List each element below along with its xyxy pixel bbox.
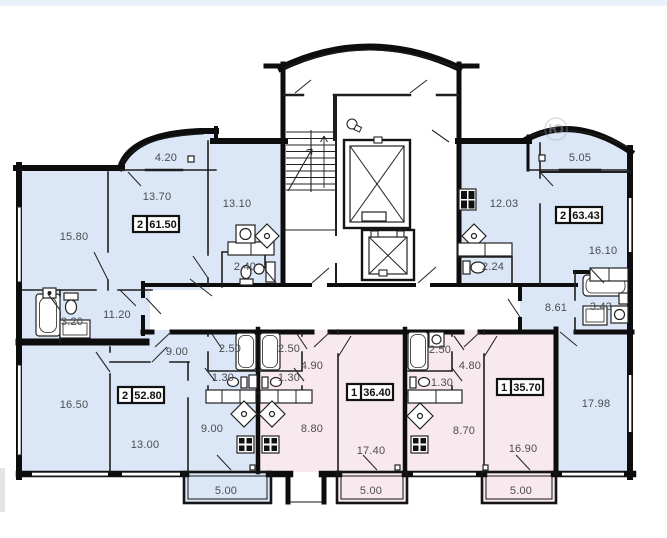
area-label-top-left-balcony: 4.20 [155,152,177,164]
vent-mark [188,156,194,162]
vent-mark [539,155,545,161]
area-label-bottom-middle-balcony: 5.00 [360,485,382,497]
total-area: 61.50 [149,219,177,231]
watermark: Ю [545,118,567,140]
apartment-box-bottom-right: 1 35.70 [497,379,543,395]
area-label-bottom-left-living: 16.50 [60,399,89,411]
area-label-bottom-middle-living: 17.40 [357,445,386,457]
stove-icon [262,436,279,453]
stove-icon [411,436,428,453]
total-area: 63.43 [572,210,600,222]
watermark-letter: Ю [548,121,563,138]
stair-up-arrow [321,136,328,188]
rooms-count: 2 [560,210,566,222]
area-label-top-right-kitchen: 12.03 [490,198,519,210]
area-label-top-left-hallway: 11.20 [103,309,131,321]
area-label-top-right-wc: 2.24 [482,261,504,273]
area-label-top-left-kitchen: 13.10 [223,198,252,210]
area-label-bottom-middle-hallway: 4.90 [301,360,323,372]
area-label-top-left-bathroom: 3.20 [61,316,83,328]
toilet-icon [410,377,416,388]
floor-plan: 4.20 13.70 13.10 15.80 2.40 3.20 11.20 5… [0,0,667,538]
fire-hose-icon [347,119,362,132]
rooms-count: 1 [351,387,357,399]
area-label-top-right-hallway: 8.61 [545,302,567,314]
stove-icon [236,225,255,243]
area-label-top-right-balcony: 5.05 [569,152,591,164]
vent-mark [395,465,400,470]
area-label-top-left-bedroom: 13.70 [143,191,172,203]
apartment-top-right-bedroom-fill [540,170,630,283]
area-label-top-right-living: 17.98 [582,398,611,410]
area-label-bottom-left-balcony: 5.00 [215,485,237,497]
area-label-bottom-left-wc: 1.30 [212,372,234,384]
area-label-top-right-bathroom: 3.43 [590,301,612,313]
area-label-top-left-living: 15.80 [60,231,89,243]
elevators [344,119,414,280]
stove-icon [237,436,254,453]
area-label-bottom-left-kitchen: 9.00 [201,423,223,435]
apartment-box-top-left: 2 61.50 [133,216,179,232]
staircase [286,130,336,192]
area-label-top-right-bedroom: 16.10 [589,245,618,257]
rooms-count: 2 [137,219,143,231]
area-label-bottom-left-bedroom: 13.00 [131,439,160,451]
area-label-bottom-right-bathroom: 2.50 [429,344,451,356]
rooms-count: 2 [122,390,128,402]
vent-mark [250,465,255,470]
total-area: 52.80 [134,390,162,402]
toilet-icon [64,293,78,300]
rooms-count: 1 [501,382,507,394]
toilet-icon [463,261,470,274]
area-label-bottom-middle-kitchen: 8.80 [301,423,323,435]
area-label-top-left-wc: 2.40 [234,261,256,273]
apartment-box-top-right: 2 63.43 [556,207,602,223]
area-label-bottom-right-wc: 1.30 [431,377,453,389]
area-label-bottom-right-hallway: 4.80 [459,360,481,372]
apartment-box-bottom-middle: 1 36.40 [347,384,393,400]
toilet-icon [262,377,268,388]
total-area: 35.70 [513,382,541,394]
area-label-bottom-right-living: 16.90 [509,443,538,455]
total-area: 36.40 [363,387,391,399]
area-label-bottom-middle-wc: 1.30 [278,372,300,384]
stair-direction-arrow [288,149,312,191]
area-label-bottom-left-hallway: 9.00 [166,346,188,358]
kitchen-counter [260,390,312,403]
washing-machine-icon [611,306,628,323]
page-edge-artifact [0,468,5,512]
floor-plan-page: 4.20 13.70 13.10 15.80 2.40 3.20 11.20 5… [0,0,667,538]
area-label-bottom-right-balcony: 5.00 [510,485,532,497]
kitchen-counter [408,390,462,403]
sink-icon [619,293,628,304]
area-label-bottom-left-bathroom: 2.50 [219,343,241,355]
area-label-bottom-middle-bathroom: 2.50 [278,343,300,355]
apartment-box-bottom-left: 2 52.80 [118,387,164,403]
area-label-bottom-right-kitchen: 8.70 [453,425,475,437]
apartment-bottom-left-fill [22,337,258,472]
vent-mark [483,465,488,470]
kitchen-counter [206,390,256,403]
